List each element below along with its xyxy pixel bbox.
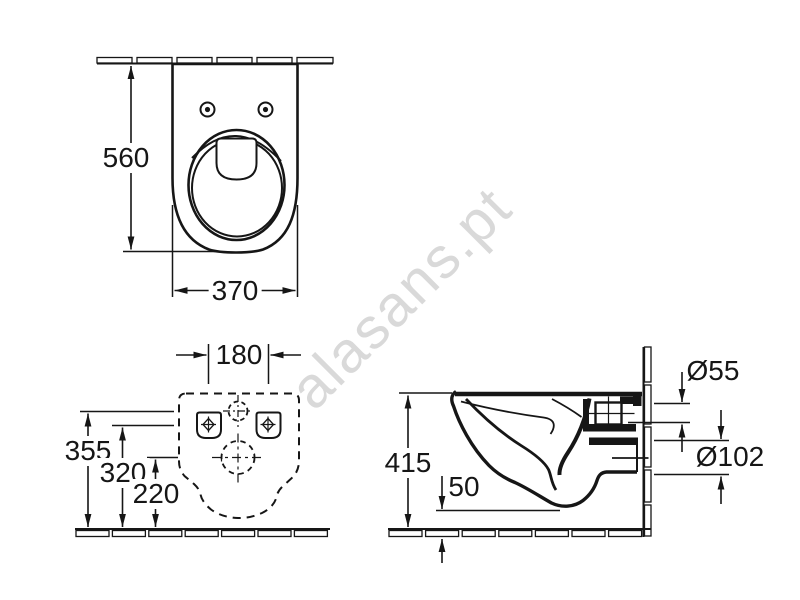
top-view-depth-label: 560 (100, 143, 153, 173)
bowl-top-view (189, 130, 285, 240)
drawing-canvas (0, 0, 800, 600)
wc-body-outline-rear-dashed (179, 394, 299, 519)
seat-fixing-holes (201, 103, 273, 117)
fixing-hole-right (257, 413, 281, 439)
side-view-inlet-diameter-label: Ø55 (684, 356, 743, 386)
top-view (97, 58, 333, 298)
technical-drawing-page: alasans.pt (0, 0, 800, 600)
rear-view-outlet-height-label: 220 (130, 479, 183, 509)
outlet-circle (212, 434, 264, 484)
inlet-spigot-side (583, 392, 642, 432)
fixing-hole-left (197, 413, 221, 439)
floor-hatch-rear-view (75, 529, 330, 537)
wall-hatch-top-view (97, 58, 333, 64)
wall-hatch-side-view (644, 347, 652, 537)
side-view-outlet-diameter-label: Ø102 (693, 442, 768, 472)
side-view (388, 347, 729, 563)
floor-hatch-side-view (388, 529, 651, 537)
rear-view-hole-spacing-label: 180 (213, 340, 266, 370)
flush-rim-top-view (217, 139, 257, 180)
top-view-width-label: 370 (209, 276, 262, 306)
side-view-clearance-label: 50 (445, 472, 482, 502)
water-inlet-circle (223, 395, 253, 427)
side-view-rim-height-label: 415 (382, 448, 435, 478)
outlet-pipe-side (589, 438, 649, 473)
